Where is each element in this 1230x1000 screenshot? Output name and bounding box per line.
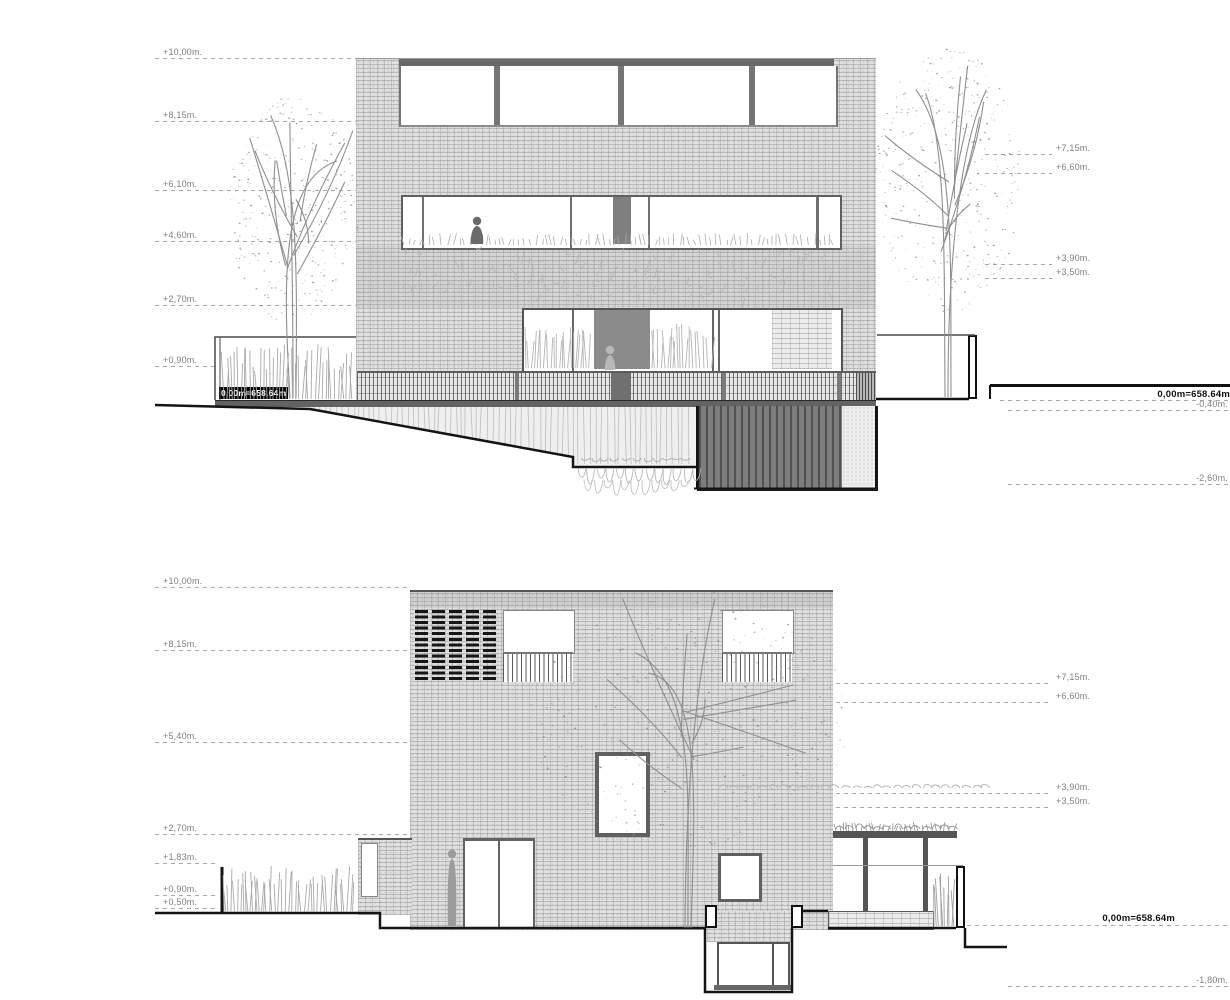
level-label: +0,90m. [163,884,197,894]
level-label: +6,60m. [1056,162,1090,172]
level-label: +3,90m. [1056,782,1090,792]
level-line [985,154,1052,155]
level-label: +8,15m. [163,639,197,649]
level-line [155,587,410,588]
level-label: +2,70m. [163,294,197,304]
level-line [836,807,1052,808]
level-label: +10,00m. [163,576,202,586]
level-line [155,742,410,743]
level-label: +7,15m. [1056,672,1090,682]
level-markers-layer: +10,00m.+8,15m.+6,10m.+4,60m.+2,70m.+0,9… [0,0,1230,1000]
level-line [155,366,219,367]
level-line [836,683,1052,684]
level-label: +2,70m. [163,823,197,833]
level-line [155,834,412,835]
level-label: +10,00m. [163,47,202,57]
level-label: +7,15m. [1056,143,1090,153]
level-line [155,241,356,242]
level-line [155,190,356,191]
level-line [985,173,1052,174]
level-line [155,305,356,306]
level-label: +3,90m. [1056,253,1090,263]
level-label: +8,15m. [163,110,197,120]
level-label: +4,60m. [163,230,197,240]
level-line [155,650,410,651]
level-line [155,863,219,864]
level-line [836,793,1052,794]
level-line [155,895,219,896]
level-label: +6,60m. [1056,691,1090,701]
level-label: +0,90m. [163,355,197,365]
level-label: -1,80m. [1140,975,1228,985]
level-line [1008,484,1230,485]
level-line [155,121,356,122]
level-line [1008,410,1230,411]
level-label: +1,83m. [163,852,197,862]
level-line [155,908,219,909]
level-label: +3,50m. [1056,796,1090,806]
level-line [155,58,356,59]
level-label: +0,50m. [163,897,197,907]
level-line [836,702,1052,703]
level-line [985,264,1052,265]
level-label: -2,60m. [1140,473,1228,483]
elevation-drawing-canvas: 0,00m=658.64m 0,00m=658.64m [0,0,1230,1000]
level-label: +3,50m. [1056,267,1090,277]
level-label: +6,10m. [163,179,197,189]
level-line [1008,986,1230,987]
level-label: +5,40m. [163,731,197,741]
level-line [985,278,1052,279]
level-label: -0,40m. [1140,399,1228,409]
